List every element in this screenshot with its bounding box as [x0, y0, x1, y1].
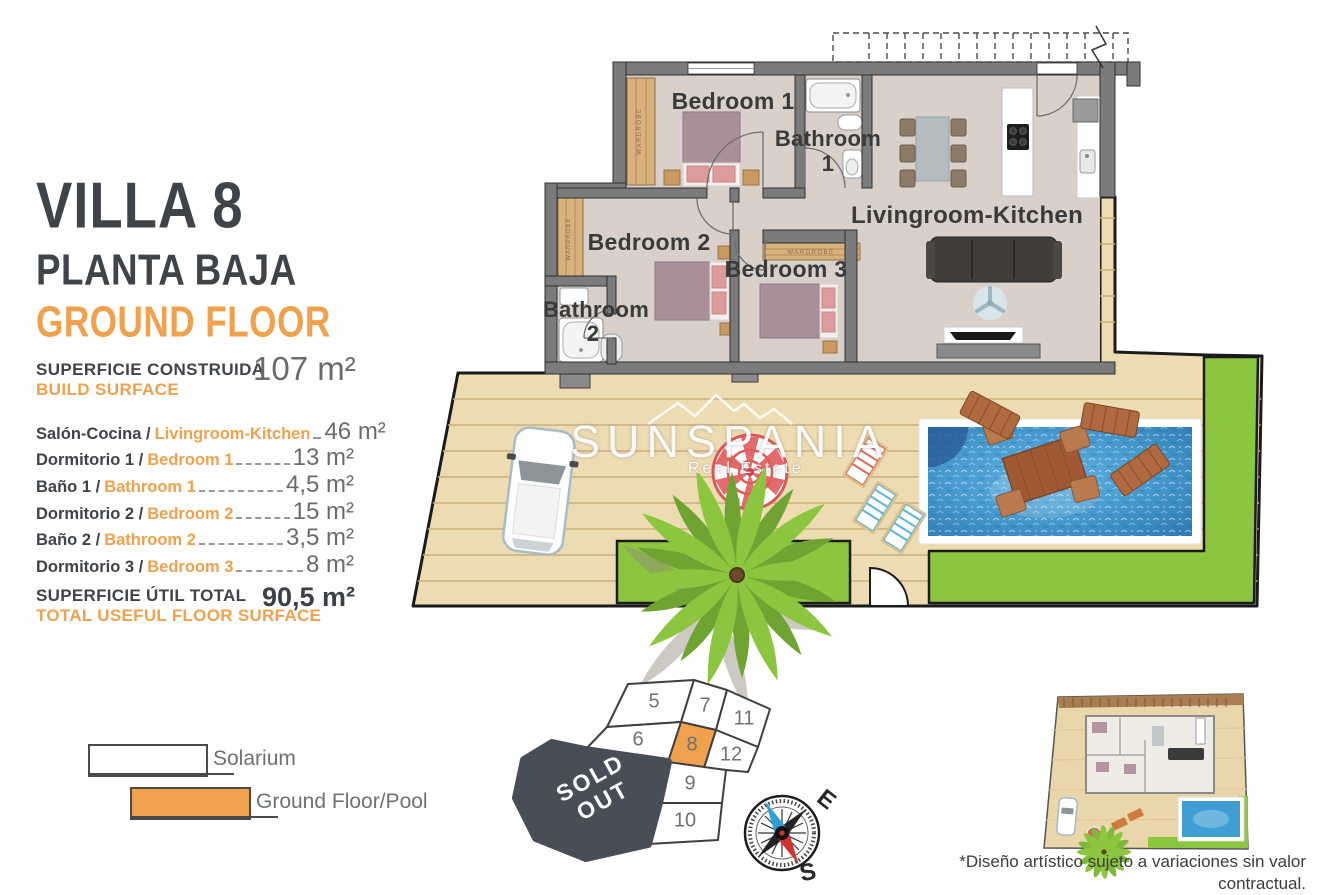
mini-building	[1086, 716, 1214, 793]
room-area-value: 4,5 m²	[286, 473, 354, 497]
page-title: VILLA 8	[36, 168, 244, 243]
label-bedroom3: Bedroom 3	[725, 256, 848, 283]
disclaimer: *Diseño artístico sujeto a variaciones s…	[870, 851, 1306, 895]
plot-number-8: 8	[686, 734, 697, 757]
room-row: Baño 1 / Bathroom 1 4,5 m²	[36, 470, 354, 497]
build-surface-value: 107 m²	[253, 350, 356, 388]
cooktop	[1007, 124, 1029, 150]
fridge	[1073, 99, 1098, 122]
plot-number-12: 12	[720, 744, 742, 767]
mini-car	[1056, 797, 1077, 835]
room-area-value: 46 m²	[324, 420, 385, 444]
dot-leader	[199, 490, 283, 492]
plot-number-5: 5	[648, 691, 659, 714]
room-name-en: Bathroom 1	[104, 478, 196, 497]
mini-pool	[1178, 797, 1244, 841]
room-area-list: Salón-Cocina / Livingroom-Kitchen 46 m² …	[36, 417, 354, 577]
plot-number-9: 9	[684, 773, 695, 796]
floorplan-page: WARDROBE WARDROBE WARDROBE	[0, 0, 1320, 895]
room-area-value: 13 m²	[293, 446, 354, 470]
label-bathroom2-number: 2	[587, 321, 600, 347]
build-surface-label-en: BUILD SURFACE	[36, 380, 179, 400]
room-name-es: Dormitorio 2 /	[36, 505, 143, 524]
svg-text:WARDROBE: WARDROBE	[637, 107, 643, 154]
room-name-es: Salón-Cocina /	[36, 425, 151, 444]
legend-label-ground-floor: Ground Floor/Pool	[256, 790, 428, 814]
legend-underline	[130, 816, 278, 818]
label-bathroom1-number: 1	[822, 151, 835, 177]
svg-text:WARDROBE: WARDROBE	[566, 217, 572, 260]
room-name-en: Bedroom 3	[147, 558, 233, 577]
room-area-value: 15 m²	[293, 500, 354, 524]
dot-leader	[313, 437, 321, 439]
kitchen-sink	[1080, 150, 1095, 173]
room-area-value: 8 m²	[306, 553, 354, 577]
subtitle-english: GROUND FLOOR	[36, 298, 331, 348]
label-bathroom1: Bathroom	[775, 126, 881, 152]
sideboard	[937, 344, 1040, 358]
room-row: Dormitorio 3 / Bedroom 3 8 m²	[36, 550, 354, 577]
bathtub-bathroom1	[806, 79, 860, 112]
total-value: 90,5 m²	[262, 582, 355, 613]
room-area-value: 3,5 m²	[286, 526, 354, 550]
room-name-es: Dormitorio 3 /	[36, 558, 143, 577]
room-row: Baño 2 / Bathroom 2 3,5 m²	[36, 524, 354, 551]
ceiling-fan	[973, 286, 1007, 320]
label-bedroom1: Bedroom 1	[672, 88, 795, 115]
room-name-es: Baño 1 /	[36, 478, 100, 497]
room-name-en: Bedroom 1	[147, 451, 233, 470]
plot-number-7: 7	[699, 695, 710, 718]
room-name-en: Bedroom 2	[147, 505, 233, 524]
total-label-es: SUPERFICIE ÚTIL TOTAL	[36, 586, 246, 606]
subtitle-spanish: PLANTA BAJA	[36, 246, 297, 296]
room-name-en: Bathroom 2	[104, 531, 196, 550]
room-name-es: Baño 2 /	[36, 531, 100, 550]
toilet-bathroom1	[843, 150, 862, 178]
legend-underline	[88, 773, 234, 775]
wardrobe-bedroom1: WARDROBE	[627, 78, 655, 185]
legend-label-solarium: Solarium	[213, 747, 296, 771]
room-name-es: Dormitorio 1 /	[36, 451, 143, 470]
sofa	[926, 237, 1062, 282]
room-name-en: Livingroom-Kitchen	[155, 425, 311, 444]
watermark-tagline: Real Estate	[688, 460, 804, 478]
build-surface-label-es: SUPERFICIE CONSTRUIDA	[36, 360, 264, 380]
label-bedroom2: Bedroom 2	[588, 229, 711, 256]
dot-leader	[236, 570, 303, 572]
stairs	[833, 33, 1128, 62]
room-row: Salón-Cocina / Livingroom-Kitchen 46 m²	[36, 417, 354, 444]
dot-leader	[199, 543, 283, 545]
room-row: Dormitorio 2 / Bedroom 2 15 m²	[36, 497, 354, 524]
dining-table	[916, 117, 949, 181]
wardrobe-bedroom2: WARDROBE	[558, 198, 583, 280]
dot-leader	[236, 517, 289, 519]
plot-number-11: 11	[734, 708, 755, 731]
dining-set	[900, 117, 966, 187]
dot-leader	[236, 463, 289, 465]
disclaimer-line1: *Diseño artístico sujeto a variaciones s…	[870, 851, 1306, 895]
label-bathroom2: Bathroom	[543, 297, 649, 323]
plot-number-10: 10	[674, 810, 696, 833]
label-livingroom-kitchen: Livingroom-Kitchen	[851, 202, 1083, 230]
room-row: Dormitorio 1 / Bedroom 1 13 m²	[36, 444, 354, 471]
